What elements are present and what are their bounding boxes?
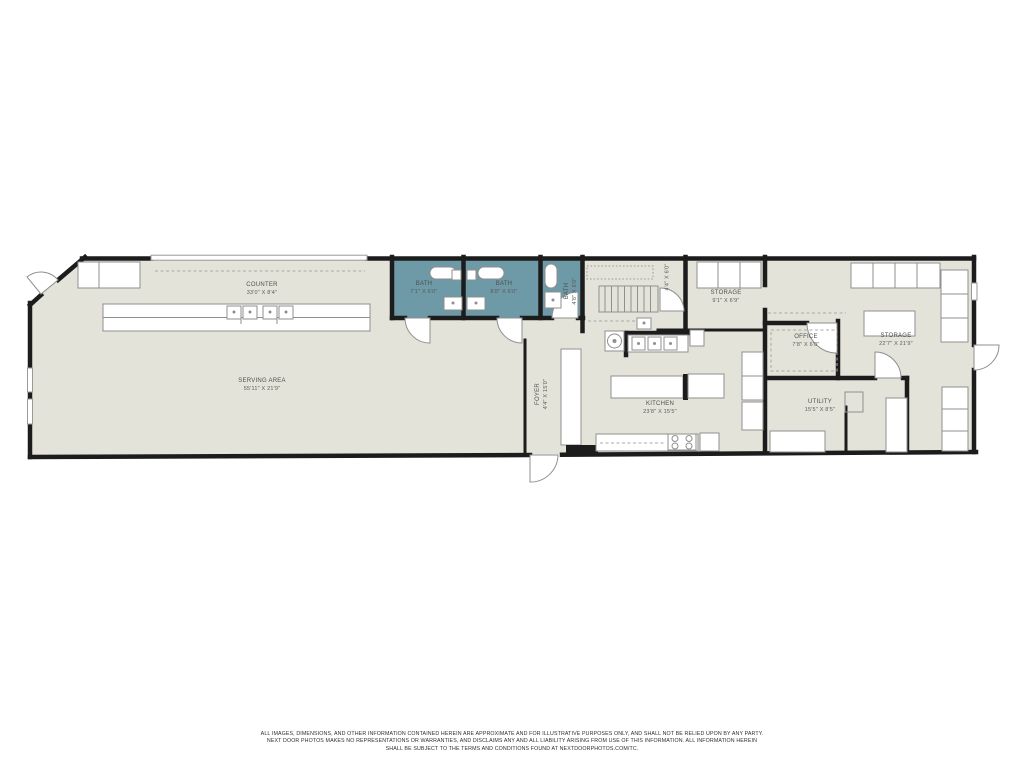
toilet-icon	[545, 264, 557, 288]
disclaimer-line-1: ALL IMAGES, DIMENSIONS, AND OTHER INFORM…	[0, 731, 1024, 738]
kitchen-island	[611, 376, 683, 398]
disclaimer-text: ALL IMAGES, DIMENSIONS, AND OTHER INFORM…	[0, 731, 1024, 753]
floorplan-drawing	[0, 0, 1024, 768]
storage-small-shelving	[697, 262, 761, 288]
bottom-exterior-door-arc	[530, 455, 558, 482]
shelving	[942, 387, 968, 451]
floorplan-canvas: COUNTER 33'0" X 8'4" SERVING AREA 55'11"…	[0, 0, 1024, 768]
storage-table	[864, 311, 915, 336]
toilet-icon	[478, 267, 504, 279]
disclaimer-line-3: SHALL BE SUBJECT TO THE TERMS AND CONDIT…	[0, 746, 1024, 753]
disclaimer-line-2: NEXT DOOR PHOTOS MAKES NO REPRESENTATION…	[0, 738, 1024, 745]
shelving	[941, 270, 968, 342]
right-exterior-door-arc	[974, 345, 999, 370]
